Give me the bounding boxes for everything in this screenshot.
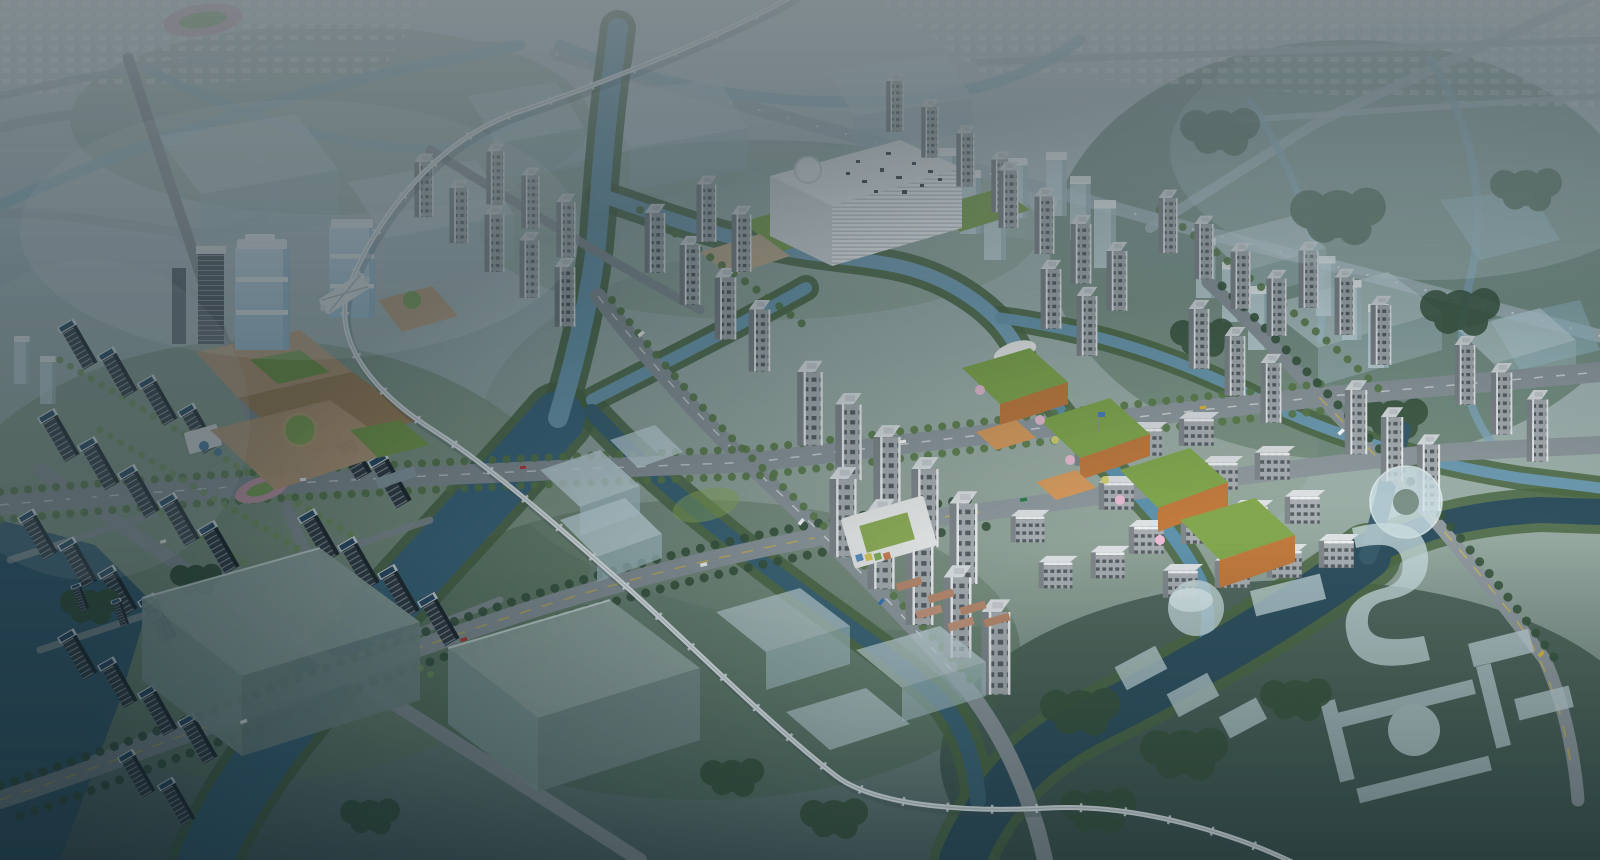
corner-vignette [0, 0, 1600, 860]
aerial-rendering-stage [0, 0, 1600, 860]
aerial-masterplan-rendering [0, 0, 1600, 860]
